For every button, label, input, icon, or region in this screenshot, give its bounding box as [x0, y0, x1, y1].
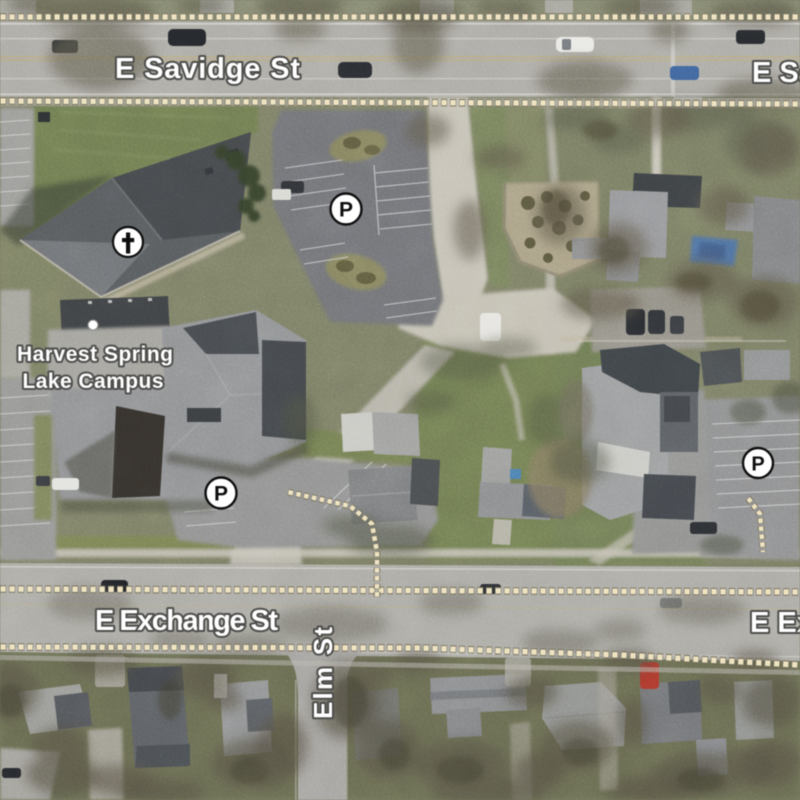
svg-text:E Sa: E Sa: [752, 57, 800, 89]
svg-text:E Savidge St: E Savidge St: [115, 53, 300, 85]
svg-text:E Ex: E Ex: [750, 607, 800, 639]
svg-text:P: P: [751, 454, 764, 476]
svg-text:Lake Campus: Lake Campus: [23, 370, 164, 393]
svg-text:P: P: [339, 199, 353, 222]
svg-text:Harvest Spring: Harvest Spring: [17, 343, 173, 366]
svg-text:E Exchange St: E Exchange St: [95, 605, 278, 637]
svg-text:Elm St: Elm St: [308, 627, 338, 719]
svg-text:P: P: [214, 483, 228, 506]
